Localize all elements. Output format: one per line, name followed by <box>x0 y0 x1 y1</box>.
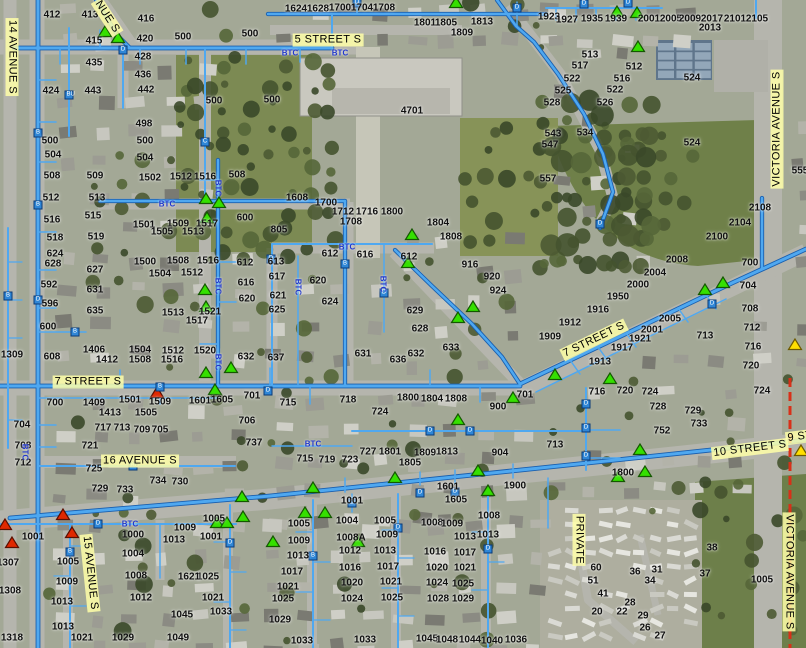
pipe-label: BTC <box>379 276 388 292</box>
parcel-number-label: 1513 <box>182 227 204 238</box>
parcel-number-label: 1033 <box>210 607 232 618</box>
parcel-number-label: 1909 <box>539 332 561 343</box>
parcel-number-label: 2001 <box>638 14 660 25</box>
parcel-number-label: 700 <box>742 258 759 269</box>
parcel-number-label: 2004 <box>644 268 666 279</box>
parcel-number-label: 713 <box>697 331 714 342</box>
street-name-label: VICTORIA AVENUE S <box>771 69 784 188</box>
parcel-number-label: 547 <box>542 140 559 151</box>
parcel-number-label: 1412 <box>96 355 118 366</box>
parcel-number-label: 704 <box>14 420 31 431</box>
parcel-number-label: 704 <box>740 281 757 292</box>
parcel-number-label: 1813 <box>436 447 458 458</box>
street-name-label: 9 ST <box>785 429 806 445</box>
parcel-number-label: 31 <box>651 565 662 576</box>
parcel-number-label: 1808 <box>440 232 462 243</box>
parcel-number-label: 1012 <box>130 593 152 604</box>
parcel-number-label: 27 <box>654 631 665 642</box>
parcel-number-label: 617 <box>269 272 286 283</box>
pipe-label: BTC <box>214 180 223 196</box>
parcel-number-label: 1025 <box>272 594 294 605</box>
parcel-number-label: 600 <box>237 213 254 224</box>
parcel-number-label: 712 <box>744 323 761 334</box>
pipe-label: BTC <box>305 440 321 449</box>
parcel-number-label: 620 <box>239 294 256 305</box>
parcel-number-label: 1509 <box>149 397 171 408</box>
parcel-number-label: 636 <box>390 355 407 366</box>
pipe-label: BTC <box>332 49 348 58</box>
parcel-number-label: 805 <box>271 225 288 236</box>
parcel-number-label: 516 <box>614 74 631 85</box>
street-name-label: 16 AVENUE S <box>101 455 179 468</box>
parcel-number-label: 1013 <box>287 551 309 562</box>
parcel-number-label: 1505 <box>135 408 157 419</box>
parcel-number-label: 436 <box>135 70 152 81</box>
pipe-node-marker[interactable]: D <box>484 545 493 554</box>
pipe-node-marker[interactable]: D <box>264 387 273 396</box>
parcel-number-label: 1029 <box>112 633 134 644</box>
parcel-number-label: 517 <box>572 61 589 72</box>
pipe-node-marker[interactable]: BU <box>65 91 74 100</box>
parcel-number-label: 1013 <box>374 546 396 557</box>
parcel-number-label: 500 <box>42 136 59 147</box>
parcel-number-label: 525 <box>555 86 572 97</box>
parcel-number-label: 625 <box>269 305 286 316</box>
parcel-number-label: 1605 <box>211 395 233 406</box>
street-name-label: 15 AVENUE S <box>79 534 100 613</box>
parcel-number-label: 1013 <box>51 597 73 608</box>
parcel-number-label: 1505 <box>151 227 173 238</box>
parcel-number-label: 1308 <box>0 586 21 597</box>
parcel-number-label: 1413 <box>99 408 121 419</box>
parcel-number-label: 734 <box>150 476 167 487</box>
parcel-number-label: 513 <box>89 193 106 204</box>
parcel-number-label: 1005 <box>288 519 310 530</box>
parcel-number-label: 628 <box>412 324 429 335</box>
parcel-number-label: 737 <box>246 438 263 449</box>
parcel-number-label: 1800 <box>381 207 403 218</box>
parcel-number-label: 1008 <box>125 571 147 582</box>
parcel-number-label: 624 <box>322 297 339 308</box>
parcel-number-label: 1917 <box>611 343 633 354</box>
parcel-number-label: 1021 <box>277 582 299 593</box>
parcel-number-label: 2101 <box>724 14 746 25</box>
parcel-number-label: 1624 <box>285 4 307 15</box>
parcel-number-label: 701 <box>244 391 261 402</box>
parcel-number-label: 752 <box>654 426 671 437</box>
pipe-node-marker[interactable]: D <box>426 427 435 436</box>
parcel-number-label: 608 <box>44 352 61 363</box>
parcel-number-label: 412 <box>44 10 61 21</box>
parcel-number-label: 600 <box>40 322 57 333</box>
pipe-node-marker[interactable]: B <box>71 328 80 337</box>
parcel-number-label: 729 <box>92 484 109 495</box>
pipe-node-marker[interactable]: D <box>582 400 591 409</box>
parcel-number-label: 1008A <box>336 533 365 544</box>
pipe-node-marker[interactable]: D <box>513 4 522 13</box>
parcel-number-label: 1017 <box>281 567 303 578</box>
street-name-label: 10 STREET S <box>711 438 789 460</box>
parcel-number-label: 504 <box>45 150 62 161</box>
pipe-node-marker[interactable]: B <box>4 292 13 301</box>
parcel-number-label: 34 <box>644 576 655 587</box>
parcel-number-label: 1029 <box>452 594 474 605</box>
parcel-number-label: 1927 <box>556 15 578 26</box>
parcel-number-label: 633 <box>443 343 460 354</box>
parcel-number-label: 2104 <box>729 218 751 229</box>
parcel-number-label: 1950 <box>607 292 629 303</box>
parcel-number-label: 415 <box>86 36 103 47</box>
parcel-number-label: 616 <box>357 250 374 261</box>
parcel-number-label: 705 <box>152 425 169 436</box>
pipe-node-marker[interactable]: D <box>119 46 128 55</box>
parcel-number-label: 1004 <box>122 549 144 560</box>
parcel-number-label: 1033 <box>354 635 376 646</box>
parcel-number-label: 1517 <box>186 316 208 327</box>
parcel-number-label: 1708 <box>373 3 395 14</box>
parcel-number-label: 60 <box>590 563 601 574</box>
parcel-number-label: 716 <box>589 387 606 398</box>
pipe-node-marker[interactable]: D <box>582 452 591 461</box>
parcel-number-label: 1508 <box>167 256 189 267</box>
parcel-number-label: 1000 <box>122 530 144 541</box>
parcel-number-label: 500 <box>137 136 154 147</box>
parcel-number-label: 420 <box>137 34 154 45</box>
parcel-number-label: 1804 <box>427 218 449 229</box>
parcel-number-label: 512 <box>626 62 643 73</box>
parcel-number-label: 733 <box>117 485 134 496</box>
parcel-number-label: 629 <box>407 306 424 317</box>
parcel-number-label: 1935 <box>581 14 603 25</box>
pipe-label: BTC <box>282 49 298 58</box>
parcel-number-label: 500 <box>264 95 281 106</box>
parcel-number-label: 428 <box>135 52 152 63</box>
parcel-number-label: 442 <box>138 85 155 96</box>
parcel-number-label: 1608 <box>286 193 308 204</box>
parcel-number-label: 1025 <box>452 579 474 590</box>
parcel-number-label: 22 <box>616 607 627 618</box>
parcel-number-label: 1017 <box>454 548 476 559</box>
parcel-number-label: 1020 <box>426 563 448 574</box>
parcel-number-label: 723 <box>342 455 359 466</box>
parcel-number-label: 524 <box>684 73 701 84</box>
parcel-number-label: 631 <box>355 349 372 360</box>
parcel-number-label: 1013 <box>454 532 476 543</box>
parcel-number-label: 1013 <box>52 622 74 633</box>
parcel-number-label: 632 <box>238 352 255 363</box>
parcel-number-label: 500 <box>206 96 223 107</box>
parcel-number-label: 1601 <box>437 482 459 493</box>
parcel-number-label: 729 <box>685 406 702 417</box>
parcel-number-label: 708 <box>742 304 759 315</box>
parcel-number-label: 443 <box>85 86 102 97</box>
parcel-number-label: 1318 <box>1 633 23 644</box>
parcel-number-label: 26 <box>639 623 650 634</box>
parcel-number-label: 631 <box>87 285 104 296</box>
parcel-number-label: 2008 <box>666 255 688 266</box>
parcel-number-label: 1001 <box>341 496 363 507</box>
parcel-number-label: 555 <box>792 166 806 177</box>
parcel-number-label: 1621 <box>178 572 200 583</box>
parcel-number-label: 730 <box>172 477 189 488</box>
parcel-number-label: 920 <box>484 272 501 283</box>
parcel-number-label: 1021 <box>71 633 93 644</box>
parcel-number-label: 1913 <box>589 357 611 368</box>
pipe-label: BTC <box>339 243 355 252</box>
parcel-number-label: 1013 <box>163 535 185 546</box>
parcel-number-label: 596 <box>42 299 59 310</box>
parcel-number-label: 2013 <box>699 23 721 34</box>
parcel-number-label: 612 <box>322 249 339 260</box>
parcel-number-label: 4701 <box>401 106 423 117</box>
parcel-number-label: 1512 <box>170 172 192 183</box>
parcel-number-label: 1504 <box>149 269 171 280</box>
parcel-number-label: 620 <box>310 276 327 287</box>
parcel-number-label: 1500 <box>134 257 156 268</box>
parcel-number-label: 900 <box>490 402 507 413</box>
parcel-number-label: 621 <box>270 291 287 302</box>
parcel-number-label: 526 <box>597 98 614 109</box>
parcel-number-label: 1502 <box>139 173 161 184</box>
parcel-number-label: 1024 <box>341 594 363 605</box>
parcel-number-label: 1028 <box>427 594 449 605</box>
parcel-number-label: 1009 <box>288 536 310 547</box>
parcel-number-label: 1020 <box>341 578 363 589</box>
parcel-number-label: 1939 <box>605 14 627 25</box>
parcel-number-label: 700 <box>47 398 64 409</box>
parcel-number-label: 717 <box>95 423 112 434</box>
parcel-number-label: 1029 <box>269 615 291 626</box>
parcel-number-label: 2108 <box>749 203 771 214</box>
map-label-layer: DDDDBUDBCBBDBDBDDDBDACDDDDDDDDDBDBDD4124… <box>0 0 806 648</box>
parcel-number-label: 1021 <box>454 563 476 574</box>
parcel-number-label: 1009 <box>441 519 463 530</box>
parcel-number-label: 515 <box>85 211 102 222</box>
parcel-number-label: 1801 <box>414 18 436 29</box>
parcel-number-label: 1017 <box>377 562 399 573</box>
pipe-node-marker[interactable]: D <box>582 424 591 433</box>
parcel-number-label: 1512 <box>181 268 203 279</box>
parcel-number-label: 2009 <box>679 14 701 25</box>
parcel-number-label: 1516 <box>161 355 183 366</box>
parcel-number-label: 1508 <box>129 355 151 366</box>
pipe-node-marker[interactable]: B <box>66 548 75 557</box>
parcel-number-label: 916 <box>462 260 479 271</box>
parcel-number-label: 41 <box>597 589 608 600</box>
parcel-number-label: 1309 <box>1 350 23 361</box>
parcel-number-label: 612 <box>401 252 418 263</box>
parcel-number-label: 557 <box>540 174 557 185</box>
street-name-label: VICTORIA AVENUE S <box>783 512 796 631</box>
parcel-number-label: 715 <box>280 398 297 409</box>
parcel-number-label: 1024 <box>426 578 448 589</box>
parcel-number-label: 2005 <box>659 314 681 325</box>
parcel-number-label: 508 <box>44 171 61 182</box>
parcel-number-label: 524 <box>684 138 701 149</box>
parcel-number-label: 522 <box>607 85 624 96</box>
parcel-number-label: 500 <box>175 32 192 43</box>
parcel-number-label: 724 <box>642 387 659 398</box>
parcel-number-label: 718 <box>340 395 357 406</box>
parcel-number-label: 1008 <box>421 518 443 529</box>
parcel-number-label: 725 <box>86 464 103 475</box>
parcel-number-label: 1800 <box>612 468 634 479</box>
parcel-number-label: 1916 <box>587 305 609 316</box>
parcel-number-label: 1516 <box>197 256 219 267</box>
parcel-number-label: 1800 <box>397 393 419 404</box>
parcel-number-label: 512 <box>43 193 60 204</box>
parcel-number-label: 733 <box>691 419 708 430</box>
parcel-number-label: 1501 <box>119 395 141 406</box>
parcel-number-label: 1004 <box>336 516 358 527</box>
parcel-number-label: 1045 <box>416 634 438 645</box>
parcel-number-label: 724 <box>754 386 771 397</box>
parcel-number-label: 1040 <box>481 636 503 647</box>
parcel-number-label: 1045 <box>171 610 193 621</box>
parcel-number-label: 1801 <box>379 447 401 458</box>
parcel-number-label: 716 <box>745 342 762 353</box>
parcel-number-label: 720 <box>743 361 760 372</box>
parcel-number-label: 2105 <box>746 14 768 25</box>
pipe-node-marker[interactable]: D <box>416 489 425 498</box>
parcel-number-label: 706 <box>239 416 256 427</box>
pipe-label: BTC <box>159 200 175 209</box>
parcel-number-label: 1016 <box>424 547 446 558</box>
pipe-node-marker[interactable]: D <box>708 300 717 309</box>
parcel-number-label: 616 <box>238 278 255 289</box>
pipe-label: BTC <box>21 444 30 460</box>
parcel-number-label: 1001 <box>200 532 222 543</box>
pipe-label: BTC <box>214 354 223 370</box>
parcel-number-label: 435 <box>86 58 103 69</box>
parcel-number-label: 1628 <box>307 4 329 15</box>
parcel-number-label: 709 <box>134 425 151 436</box>
parcel-number-label: 1813 <box>471 17 493 28</box>
parcel-number-label: 632 <box>408 349 425 360</box>
parcel-number-label: 500 <box>242 29 259 40</box>
parcel-number-label: 509 <box>87 171 104 182</box>
parcel-number-label: 1013 <box>477 530 499 541</box>
pipe-node-marker[interactable]: B <box>309 552 318 561</box>
parcel-number-label: 534 <box>577 128 594 139</box>
pipe-node-marker[interactable]: D <box>466 427 475 436</box>
parcel-number-label: 543 <box>545 129 562 140</box>
parcel-number-label: 1005 <box>374 516 396 527</box>
parcel-number-label: 1001 <box>22 532 44 543</box>
parcel-number-label: 721 <box>82 441 99 452</box>
parcel-number-label: 522 <box>564 74 581 85</box>
pipe-node-marker[interactable]: D <box>596 220 605 229</box>
pipe-node-marker[interactable]: B <box>341 260 350 269</box>
parcel-number-label: 1049 <box>167 633 189 644</box>
parcel-number-label: 727 <box>360 447 377 458</box>
parcel-number-label: 2000 <box>627 280 649 291</box>
parcel-number-label: 51 <box>587 576 598 587</box>
parcel-number-label: 36 <box>629 567 640 578</box>
pipe-node-marker[interactable]: D <box>94 520 103 529</box>
parcel-number-label: 713 <box>547 440 564 451</box>
parcel-number-label: 1025 <box>381 593 403 604</box>
parcel-number-label: 38 <box>706 543 717 554</box>
parcel-number-label: 592 <box>41 280 58 291</box>
parcel-number-label: 1016 <box>339 563 361 574</box>
pipe-node-marker[interactable]: C <box>201 138 210 147</box>
parcel-number-label: 1704 <box>351 3 373 14</box>
parcel-number-label: 1005 <box>57 557 79 568</box>
parcel-number-label: 1900 <box>504 481 526 492</box>
parcel-number-label: 516 <box>44 215 61 226</box>
parcel-number-label: 1009 <box>56 577 78 588</box>
parcel-number-label: 701 <box>517 390 534 401</box>
street-name-label: PRIVATE <box>573 514 586 566</box>
parcel-number-label: 504 <box>137 153 154 164</box>
parcel-number-label: 1700 <box>329 3 351 14</box>
parcel-number-label: 20 <box>591 607 602 618</box>
parcel-number-label: 1307 <box>0 558 19 569</box>
street-name-label: 5 STREET S <box>293 34 364 47</box>
parcel-number-label: 508 <box>229 170 246 181</box>
parcel-number-label: 1912 <box>559 318 581 329</box>
parcel-number-label: 715 <box>297 454 314 465</box>
parcel-number-label: 1601 <box>189 396 211 407</box>
parcel-number-label: 513 <box>582 50 599 61</box>
parcel-number-label: 1009 <box>376 530 398 541</box>
pipe-node-marker[interactable]: B <box>156 383 165 392</box>
parcel-number-label: 37 <box>699 569 710 580</box>
pipe-node-marker[interactable]: D <box>624 0 633 8</box>
parcel-number-label: 1605 <box>445 495 467 506</box>
pipe-node-marker[interactable]: D <box>226 539 235 548</box>
parcel-number-label: 1012 <box>339 546 361 557</box>
parcel-number-label: 1021 <box>380 577 402 588</box>
parcel-number-label: 1036 <box>505 635 527 646</box>
map-canvas[interactable]: DDDDBUDBCBBDBDBDDDBDACDDDDDDDDDBDBDD4124… <box>0 0 806 648</box>
parcel-number-label: 627 <box>87 265 104 276</box>
parcel-number-label: 904 <box>492 448 509 459</box>
parcel-number-label: 924 <box>490 286 507 297</box>
parcel-number-label: 713 <box>114 423 131 434</box>
parcel-number-label: 518 <box>47 233 64 244</box>
pipe-node-marker[interactable]: B <box>34 201 43 210</box>
parcel-number-label: 1044 <box>459 635 481 646</box>
parcel-number-label: 1513 <box>162 308 184 319</box>
pipe-label: BTC <box>294 279 303 295</box>
parcel-number-label: 1009 <box>174 523 196 534</box>
parcel-number-label: 1809 <box>451 28 473 39</box>
parcel-number-label: 1008 <box>478 511 500 522</box>
parcel-number-label: 519 <box>88 232 105 243</box>
parcel-number-label: 719 <box>319 455 336 466</box>
parcel-number-label: 1005 <box>751 575 773 586</box>
parcel-number-label: 720 <box>617 386 634 397</box>
parcel-number-label: 613 <box>268 257 285 268</box>
parcel-number-label: 2100 <box>706 232 728 243</box>
parcel-number-label: 416 <box>138 14 155 25</box>
parcel-number-label: 612 <box>237 258 254 269</box>
parcel-number-label: 1025 <box>197 572 219 583</box>
street-name-label: 7 STREET S <box>53 376 124 389</box>
pipe-label: BTC <box>214 278 223 294</box>
parcel-number-label: 1808 <box>445 394 467 405</box>
pipe-node-marker[interactable]: D <box>580 0 589 9</box>
parcel-number-label: 637 <box>268 353 285 364</box>
parcel-number-label: 728 <box>650 402 667 413</box>
parcel-number-label: 724 <box>372 407 389 418</box>
parcel-number-label: 1021 <box>202 593 224 604</box>
street-name-label: 14 AVENUE S <box>6 18 19 96</box>
parcel-number-label: 1804 <box>421 394 443 405</box>
parcel-number-label: 1805 <box>399 458 421 469</box>
